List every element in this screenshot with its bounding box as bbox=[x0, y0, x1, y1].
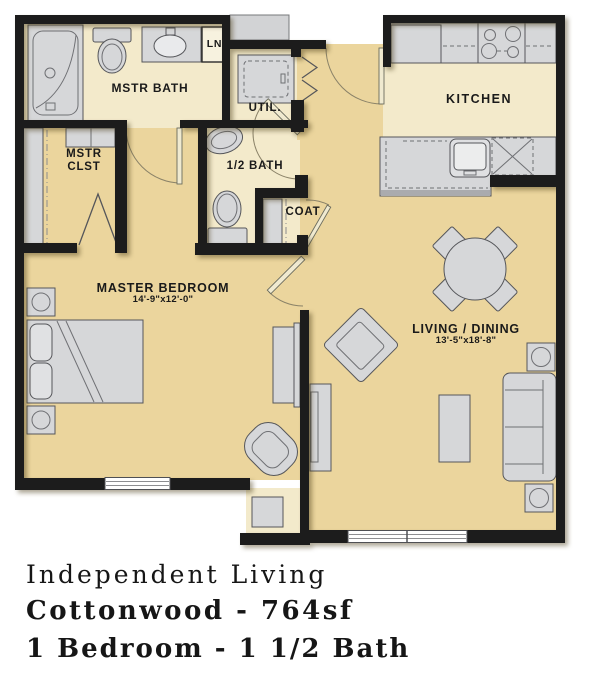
wall bbox=[222, 15, 230, 128]
living-dining-name: LIVING / DINING bbox=[396, 322, 536, 336]
wall bbox=[383, 15, 391, 67]
wall bbox=[490, 175, 565, 187]
coat-label: COAT bbox=[277, 206, 329, 219]
wall bbox=[115, 120, 127, 253]
master-bedroom-label: MASTER BEDROOM 14'-9"x12'-0" bbox=[78, 281, 248, 306]
caption-line2: Cottonwood - 764sf bbox=[26, 596, 354, 626]
caption-line1: Independent Living bbox=[26, 560, 327, 589]
wall bbox=[15, 15, 230, 24]
living-dining-dimensions: 13'-5"x18'-8" bbox=[396, 336, 536, 347]
wall bbox=[195, 243, 308, 255]
wall bbox=[556, 15, 565, 543]
wall bbox=[222, 40, 326, 49]
master-bedroom-dimensions: 14'-9"x12'-0" bbox=[78, 295, 248, 306]
master-bedroom-name: MASTER BEDROOM bbox=[78, 281, 248, 295]
master-closet-label: MSTR CLST bbox=[50, 148, 118, 174]
wall bbox=[198, 120, 207, 255]
wall bbox=[117, 243, 127, 253]
master-bath-label: MSTR BATH bbox=[95, 82, 205, 96]
wall bbox=[291, 48, 301, 57]
wall bbox=[300, 310, 309, 543]
wall bbox=[300, 530, 565, 543]
kitchen-label: KITCHEN bbox=[430, 92, 528, 106]
half-bath-label: 1/2 BATH bbox=[207, 160, 303, 173]
master-closet-label-line2: CLST bbox=[50, 161, 118, 174]
utility-label: UTIL. bbox=[236, 102, 294, 115]
wall bbox=[15, 478, 250, 490]
caption-line3: 1 Bedroom - 1 1/2 Bath bbox=[26, 634, 410, 664]
wall bbox=[15, 243, 77, 253]
wall bbox=[255, 190, 263, 247]
wall bbox=[15, 120, 118, 128]
floor-plan-page: MSTR BATH LN UTIL. 1/2 BATH COAT MSTR CL… bbox=[0, 0, 604, 696]
wall bbox=[383, 15, 565, 23]
living-dining-label: LIVING / DINING 13'-5"x18'-8" bbox=[396, 322, 536, 347]
master-closet-label-line1: MSTR bbox=[50, 148, 118, 161]
linen-label: LN bbox=[202, 38, 227, 50]
